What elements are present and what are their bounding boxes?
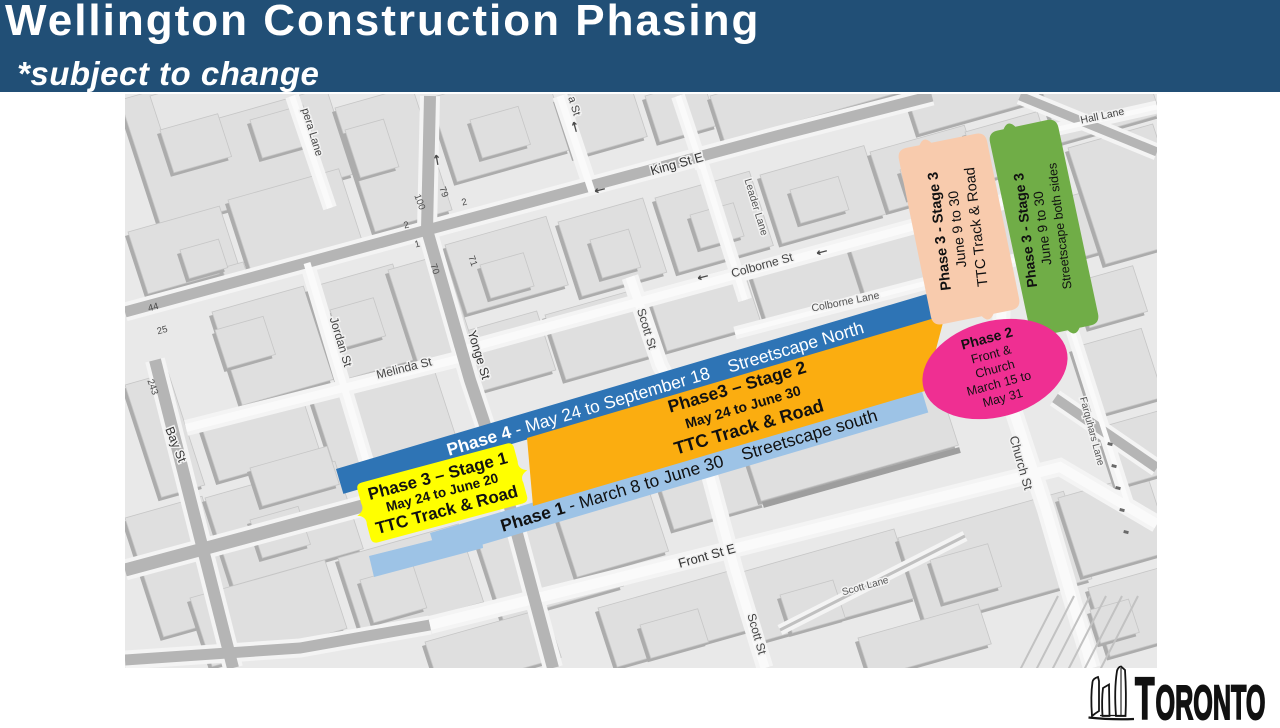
svg-text:T: T	[1135, 666, 1155, 728]
svg-text:ORONTO: ORONTO	[1156, 677, 1266, 728]
